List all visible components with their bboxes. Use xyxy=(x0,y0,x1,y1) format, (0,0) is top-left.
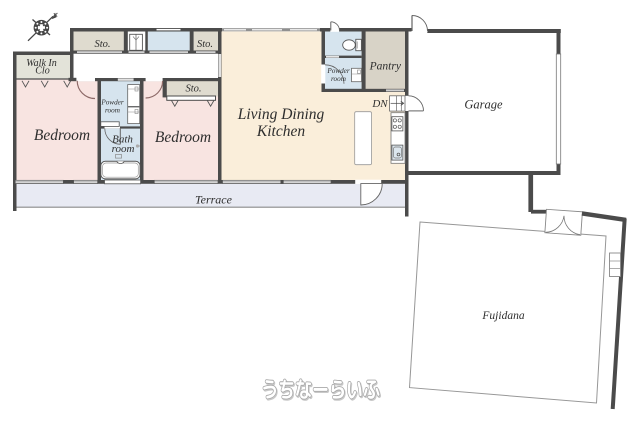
svg-text:Bedroom: Bedroom xyxy=(155,129,211,146)
svg-text:Powder: Powder xyxy=(326,67,350,75)
svg-text:Sto.: Sto. xyxy=(197,39,213,50)
svg-text:Terrace: Terrace xyxy=(195,193,233,207)
svg-text:Clo: Clo xyxy=(35,66,49,77)
svg-text:Fujidana: Fujidana xyxy=(481,310,524,322)
svg-text:room: room xyxy=(331,75,346,83)
svg-text:Bedroom: Bedroom xyxy=(34,127,90,144)
svg-text:Living Dining: Living Dining xyxy=(237,106,325,123)
svg-text:room: room xyxy=(105,107,120,115)
svg-text:DN: DN xyxy=(371,98,388,110)
svg-text:Sto.: Sto. xyxy=(94,39,110,50)
svg-text:room: room xyxy=(112,143,135,155)
svg-text:Garage: Garage xyxy=(464,97,503,111)
svg-text:Sto.: Sto. xyxy=(185,84,201,95)
svg-text:Pantry: Pantry xyxy=(369,60,402,72)
svg-text:Powder: Powder xyxy=(100,99,124,107)
svg-text:Kitchen: Kitchen xyxy=(256,123,305,140)
